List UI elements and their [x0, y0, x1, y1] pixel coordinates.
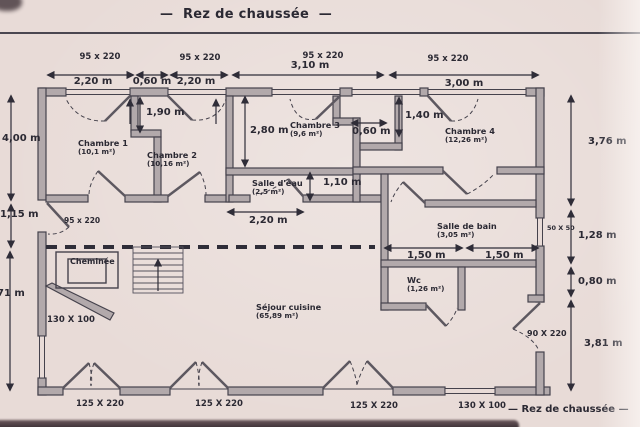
post-size-label-50x50: 50 X 50	[547, 225, 575, 232]
dim-label-1-15: 1,15 m	[0, 210, 39, 221]
room-label-chambre2: Chambre 2 (10,16 m²)	[147, 151, 197, 169]
dim-label-0-80: 0,80 m	[578, 277, 617, 288]
staircase	[133, 247, 183, 293]
footer-text: Rez de chaussée	[521, 404, 615, 415]
room-label-cheminee: Cheminée	[70, 258, 115, 266]
window-size-label-2: 95 x 220	[172, 54, 228, 63]
room-area: (10,1 m²)	[78, 148, 128, 156]
room-label-sejour: Séjour cuisine (65,89 m²)	[256, 303, 321, 321]
room-label-wc: Wc (1,26 m²)	[407, 276, 444, 294]
room-label-salle-eau: Salle d'eau (2,5 m²)	[252, 179, 303, 197]
window-size-label-left: 130 X 100	[47, 316, 95, 325]
dim-label-2-20-hall: 2,20 m	[249, 216, 288, 227]
room-area: (12,26 m²)	[445, 136, 495, 144]
door-size-label-left: 95 x 220	[64, 217, 100, 225]
dim-label-2-71: 71 m	[0, 289, 25, 300]
dim-label-2-80: 2,80 m	[250, 126, 289, 137]
room-area: (10,16 m²)	[147, 160, 197, 168]
dim-label-1-10: 1,10 m	[323, 178, 362, 189]
window-size-label-bottom: 130 X 100	[458, 402, 506, 411]
room-label-chambre4: Chambre 4 (12,26 m²)	[445, 127, 495, 145]
dim-label-3-10: 3,10 m	[282, 61, 338, 72]
dim-label-3-76: 3,76 m	[588, 137, 627, 148]
dim-label-1-90: 1,90 m	[146, 108, 185, 119]
footer-dash-left: —	[508, 404, 518, 415]
dim-label-1-50-b: 1,50 m	[485, 251, 524, 262]
french-door-label-3: 125 X 220	[350, 402, 398, 411]
room-area: (65,89 m²)	[256, 312, 321, 320]
room-area: (3,05 m²)	[437, 231, 497, 239]
window-size-label-1: 95 x 220	[72, 53, 128, 62]
door-size-label-entry: 90 X 220	[527, 330, 567, 338]
dim-label-2-20-a: 2,20 m	[65, 77, 121, 88]
room-area: (1,26 m²)	[407, 285, 444, 293]
room-area: (2,5 m²)	[252, 188, 303, 196]
french-door-label-1: 125 X 220	[76, 400, 124, 409]
dim-label-3-00: 3,00 m	[436, 79, 492, 90]
room-label-salle-bain: Salle de bain (3,05 m²)	[437, 222, 497, 240]
footer-title: — Rez de chaussée —	[508, 405, 629, 416]
dim-label-1-40: 1,40 m	[405, 111, 444, 122]
dim-label-1-50-a: 1,50 m	[407, 251, 446, 262]
room-label-chambre3: Chambre 3 (9,6 m²)	[290, 121, 340, 139]
dim-label-4-00: 4,00 m	[2, 134, 41, 145]
french-door-label-2: 125 X 220	[195, 400, 243, 409]
dim-label-1-28: 1,28 m	[578, 231, 617, 242]
floorplan-photo: — Rez de chaussée —	[0, 0, 640, 427]
room-area: (9,6 m²)	[290, 130, 340, 138]
dim-label-0-60-inner: 0,60 m	[352, 127, 391, 138]
footer-dash-right: —	[619, 404, 629, 415]
dim-label-3-81: 3,81 m	[584, 339, 623, 350]
dim-label-2-20-b: 2,20 m	[168, 77, 224, 88]
photo-bottom-shadow	[0, 420, 519, 427]
room-label-chambre1: Chambre 1 (10,1 m²)	[78, 139, 128, 157]
window-size-label-4: 95 x 220	[420, 55, 476, 64]
